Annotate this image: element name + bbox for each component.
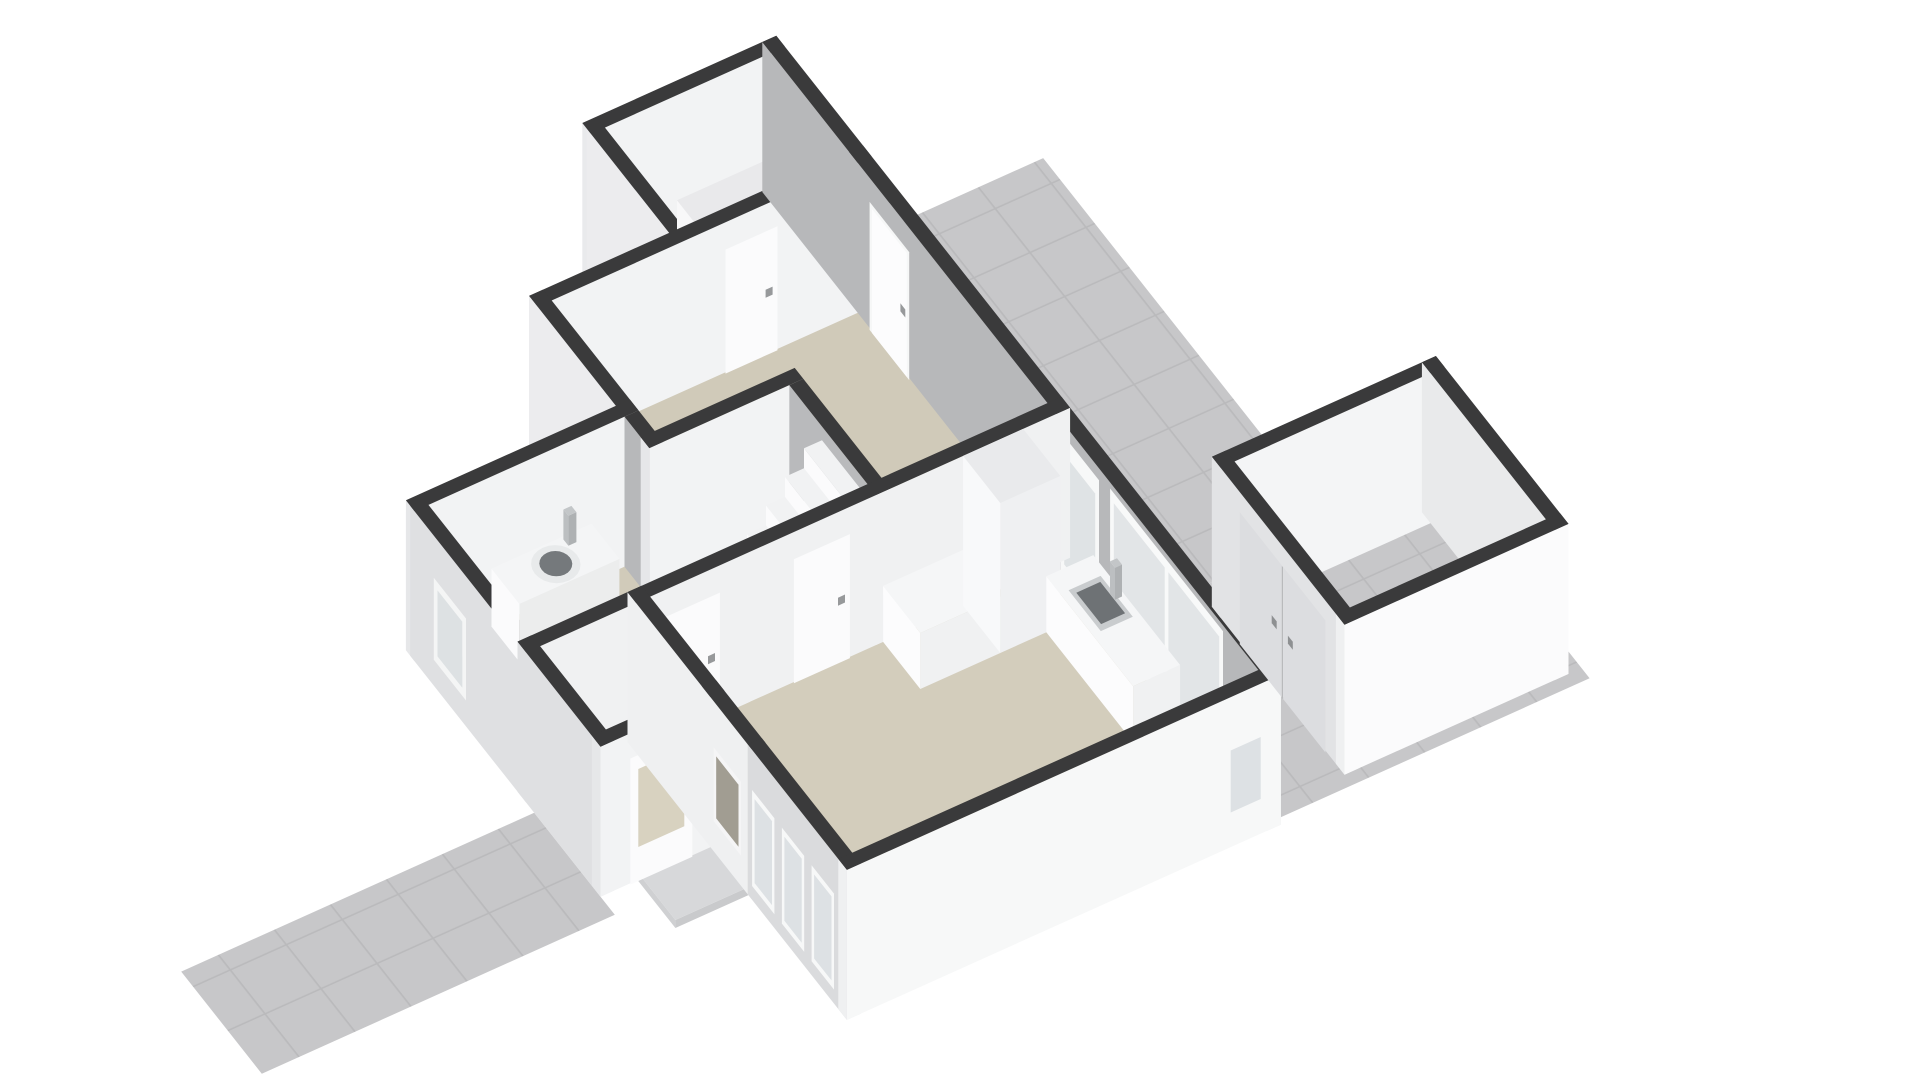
top-room-door xyxy=(726,226,778,373)
shed-door-seam xyxy=(1282,566,1283,700)
floorplan-page xyxy=(0,0,1920,1080)
kitchen-faucet-se-face xyxy=(1115,565,1122,600)
washbasin-faucet-se-face xyxy=(568,512,576,546)
stair-closet-door xyxy=(794,534,850,683)
washbasin-faucet-sw-face xyxy=(563,510,568,546)
floorplan-svg xyxy=(0,0,1920,1080)
kitchen-faucet-sw-face xyxy=(1110,561,1115,599)
front-door-wall-sw-face xyxy=(592,736,601,897)
shed-se-wall-sw-face xyxy=(1336,614,1345,775)
stair-closet-nw-wall-sw-face xyxy=(641,437,650,598)
living-se-facade-sw-face xyxy=(838,859,847,1020)
